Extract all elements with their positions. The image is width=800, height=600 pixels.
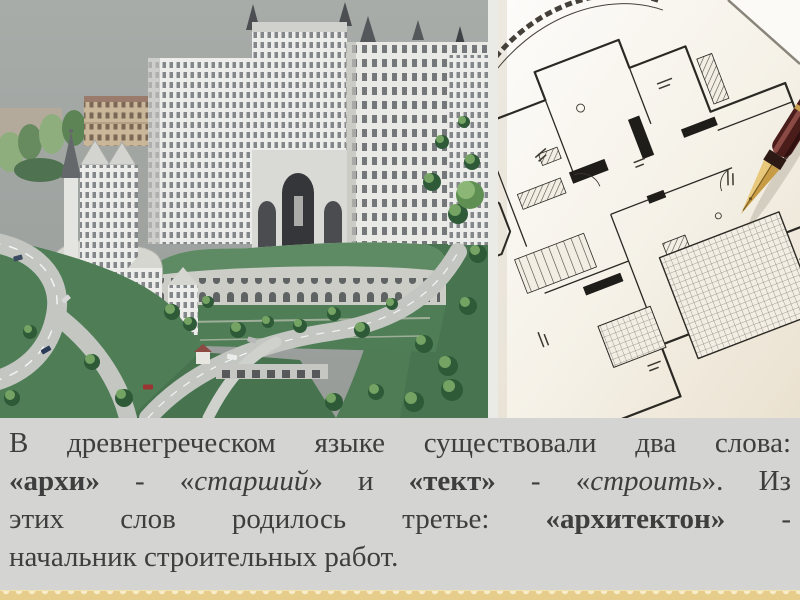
image-gap	[488, 0, 498, 418]
slide-text: В древнегреческом языке существовали два…	[9, 424, 791, 576]
text-line: начальник строительных работ.	[9, 538, 791, 576]
text-line: этих слов родилось третье: «архитектон» …	[9, 500, 791, 538]
blueprint-photo	[498, 0, 800, 418]
text-segment: » и	[308, 465, 408, 497]
decorative-border-strip	[0, 590, 800, 600]
text-segment: - «	[100, 465, 194, 497]
drafting-paper	[498, 0, 800, 418]
blueprint-illustration	[498, 0, 800, 418]
text-line: «архи» - «старший» и «тект» - «строить».…	[9, 462, 791, 500]
text-segment: «тект»	[409, 465, 496, 497]
text-segment: В древнегреческом языке существовали два…	[9, 427, 791, 459]
city-model-photo	[0, 0, 488, 418]
text-segment: «архитектон»	[545, 503, 725, 535]
text-segment: -	[725, 503, 791, 535]
text-line: В древнегреческом языке существовали два…	[9, 424, 791, 462]
text-segment: начальник строительных работ.	[9, 541, 398, 573]
text-segment: ». Из	[702, 465, 791, 497]
text-segment: - «	[496, 465, 590, 497]
text-segment: «архи»	[9, 465, 100, 497]
text-segment: этих слов родилось третье:	[9, 503, 545, 535]
presentation-slide: В древнегреческом языке существовали два…	[0, 0, 800, 600]
text-segment: строить	[590, 465, 701, 497]
text-segment: старший	[194, 465, 308, 497]
city-model-illustration	[0, 0, 488, 418]
